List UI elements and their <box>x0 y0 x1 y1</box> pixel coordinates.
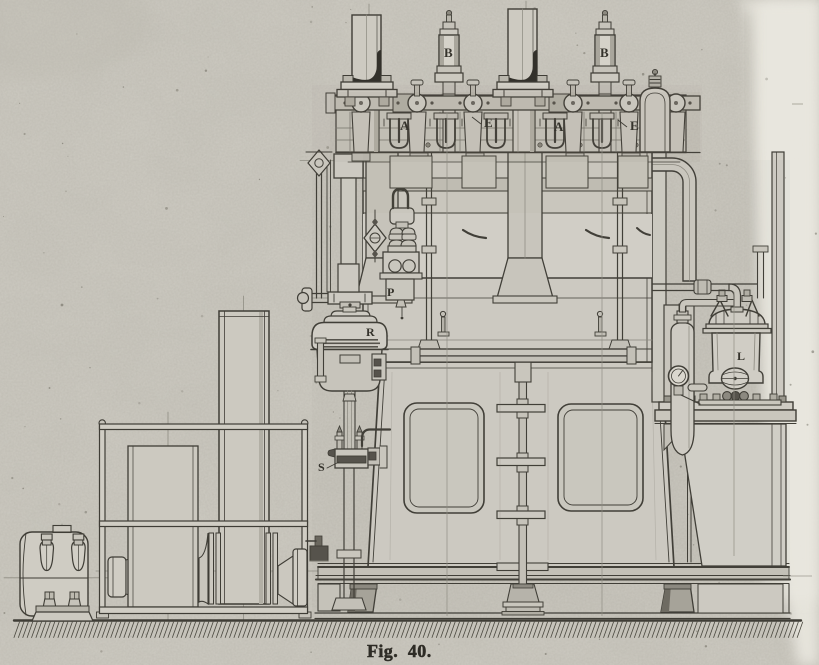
svg-text:Fig. 40.: Fig. 40. <box>367 641 432 661</box>
svg-text:R: R <box>366 325 375 339</box>
svg-text:P: P <box>387 285 394 299</box>
svg-text:B: B <box>444 45 453 60</box>
svg-text:A: A <box>400 118 410 133</box>
svg-text:S: S <box>318 460 325 474</box>
svg-text:L: L <box>737 349 745 363</box>
svg-text:A: A <box>554 119 564 134</box>
svg-text:E: E <box>630 118 639 133</box>
svg-text:E: E <box>484 115 493 130</box>
svg-text:B: B <box>600 45 609 60</box>
